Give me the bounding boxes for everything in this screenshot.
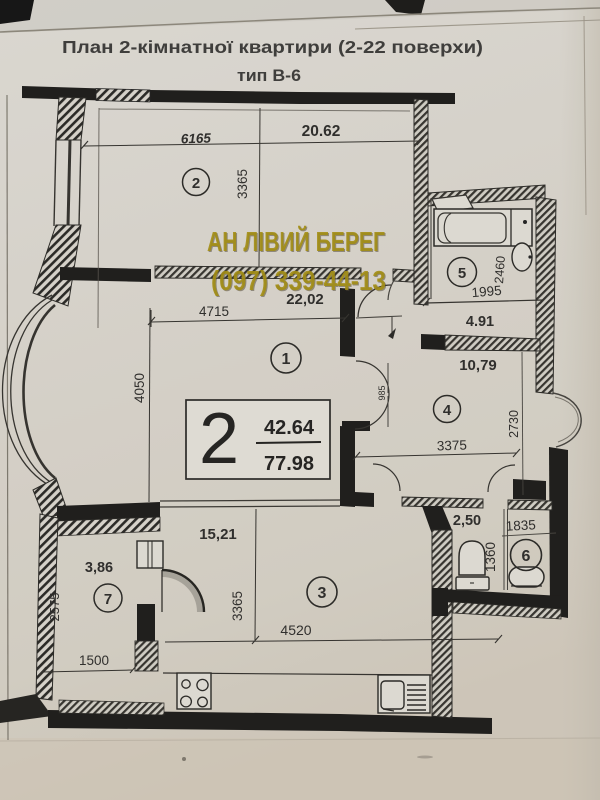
svg-text:3365: 3365 <box>235 169 250 199</box>
svg-text:4715: 4715 <box>199 304 229 319</box>
svg-text:2460: 2460 <box>492 255 508 284</box>
svg-text:2,50: 2,50 <box>453 513 481 529</box>
svg-text:1500: 1500 <box>79 653 109 668</box>
svg-text:тип В-6: тип В-6 <box>237 66 301 85</box>
svg-text:2: 2 <box>199 399 239 479</box>
svg-text:5: 5 <box>458 265 466 282</box>
svg-text:77.98: 77.98 <box>264 453 314 475</box>
svg-text:985: 985 <box>377 385 387 400</box>
svg-text:1: 1 <box>282 351 291 368</box>
svg-text:2730: 2730 <box>507 410 521 438</box>
svg-text:2: 2 <box>192 175 200 192</box>
svg-text:План 2-кімнатної квартири (2-2: План 2-кімнатної квартири (2-22 поверхи) <box>62 37 483 57</box>
svg-text:6: 6 <box>522 548 531 565</box>
svg-text:3: 3 <box>318 585 327 602</box>
svg-text:3,86: 3,86 <box>85 560 113 576</box>
svg-text:2575: 2575 <box>47 593 62 622</box>
svg-text:4.91: 4.91 <box>466 314 494 330</box>
svg-text:20.62: 20.62 <box>302 123 341 140</box>
svg-text:АН ЛІВИЙ БЕРЕГ: АН ЛІВИЙ БЕРЕГ <box>207 225 385 257</box>
svg-text:1995: 1995 <box>471 283 502 301</box>
svg-text:(097) 339-44-13: (097) 339-44-13 <box>211 265 386 296</box>
svg-text:42.64: 42.64 <box>264 417 315 439</box>
svg-text:3365: 3365 <box>230 591 245 621</box>
svg-text:15,21: 15,21 <box>199 526 237 543</box>
svg-text:4050: 4050 <box>132 373 147 403</box>
svg-text:1835: 1835 <box>505 517 536 534</box>
svg-text:10,79: 10,79 <box>459 357 497 374</box>
svg-text:6165: 6165 <box>181 130 212 146</box>
svg-text:1360: 1360 <box>483 542 498 572</box>
svg-text:7: 7 <box>104 591 112 608</box>
svg-text:3375: 3375 <box>437 437 468 453</box>
svg-text:4: 4 <box>443 402 452 419</box>
svg-text:4520: 4520 <box>280 622 311 638</box>
